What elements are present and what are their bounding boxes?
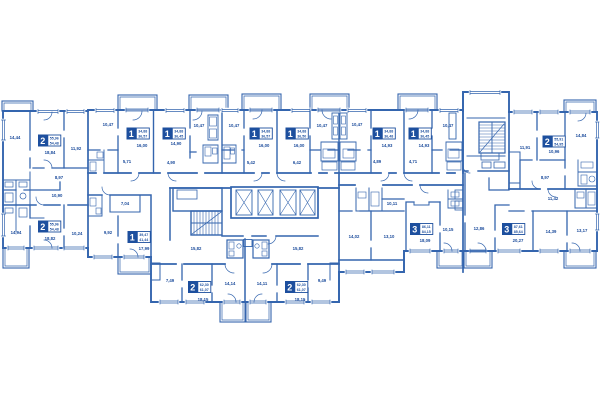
svg-text:14,14: 14,14: [225, 281, 236, 286]
svg-text:41,44: 41,44: [139, 238, 148, 242]
svg-text:34,88: 34,88: [174, 130, 183, 134]
svg-text:14,94: 14,94: [11, 230, 22, 235]
svg-text:11,91: 11,91: [520, 145, 531, 150]
svg-text:1: 1: [375, 129, 380, 139]
svg-text:54,48: 54,48: [50, 228, 59, 232]
svg-text:14,11: 14,11: [257, 281, 268, 286]
svg-text:2: 2: [545, 137, 550, 147]
svg-text:17,99: 17,99: [139, 246, 150, 251]
svg-text:34,88: 34,88: [138, 130, 147, 134]
svg-text:2: 2: [40, 222, 45, 232]
svg-text:10,47: 10,47: [103, 122, 114, 127]
svg-text:61,07: 61,07: [297, 288, 306, 292]
svg-text:8,97: 8,97: [541, 175, 550, 180]
svg-text:2: 2: [40, 136, 45, 146]
svg-text:1: 1: [411, 129, 416, 139]
svg-text:14,39: 14,39: [546, 229, 557, 234]
svg-text:84,15: 84,15: [422, 230, 431, 234]
svg-text:14,84: 14,84: [576, 133, 587, 138]
svg-text:13,10: 13,10: [384, 234, 395, 239]
svg-text:16,00: 16,00: [137, 143, 148, 148]
svg-text:55,96: 55,96: [50, 137, 59, 141]
svg-text:1: 1: [130, 233, 135, 243]
svg-text:1: 1: [252, 129, 257, 139]
svg-text:10,15: 10,15: [443, 227, 454, 232]
svg-text:10,47: 10,47: [317, 123, 328, 128]
svg-text:13,17: 13,17: [577, 228, 588, 233]
svg-text:54,48: 54,48: [50, 142, 59, 146]
svg-text:87,61: 87,61: [514, 225, 523, 229]
svg-text:39,47: 39,47: [139, 233, 148, 237]
svg-text:1: 1: [129, 129, 134, 139]
svg-text:7,04: 7,04: [121, 201, 130, 206]
svg-text:15,82: 15,82: [191, 246, 202, 251]
svg-text:36,57: 36,57: [261, 135, 270, 139]
svg-text:5,42: 5,42: [247, 160, 256, 165]
svg-text:36,48: 36,48: [384, 135, 393, 139]
svg-text:55,96: 55,96: [50, 223, 59, 227]
svg-text:55,91: 55,91: [554, 138, 563, 142]
svg-text:4,71: 4,71: [409, 159, 418, 164]
svg-text:7,49: 7,49: [166, 278, 175, 283]
svg-text:1: 1: [288, 129, 293, 139]
svg-text:3: 3: [504, 225, 509, 235]
svg-text:4,89: 4,89: [373, 159, 382, 164]
svg-text:16,00: 16,00: [294, 143, 305, 148]
svg-text:10,24: 10,24: [72, 231, 83, 236]
svg-text:36,45: 36,45: [174, 135, 183, 139]
svg-text:9,49: 9,49: [318, 278, 327, 283]
svg-text:2: 2: [190, 283, 195, 293]
svg-text:16,00: 16,00: [259, 143, 270, 148]
svg-text:2: 2: [287, 283, 292, 293]
svg-text:34,88: 34,88: [297, 130, 306, 134]
svg-text:14,44: 14,44: [10, 135, 21, 140]
svg-text:36,50: 36,50: [297, 135, 306, 139]
svg-text:8,97: 8,97: [55, 175, 64, 180]
svg-text:6,42: 6,42: [293, 160, 302, 165]
svg-text:34,88: 34,88: [384, 130, 393, 134]
svg-text:18,82: 18,82: [45, 236, 56, 241]
svg-text:85,64: 85,64: [514, 230, 523, 234]
svg-text:14,93: 14,93: [382, 143, 393, 148]
svg-text:3: 3: [412, 225, 417, 235]
svg-text:4,90: 4,90: [167, 160, 176, 165]
svg-text:18,09: 18,09: [420, 238, 431, 243]
svg-text:11,42: 11,42: [548, 196, 559, 201]
svg-text:36,45: 36,45: [420, 135, 429, 139]
svg-text:11,92: 11,92: [71, 146, 82, 151]
svg-text:54,95: 54,95: [554, 143, 563, 147]
svg-text:10,47: 10,47: [443, 123, 454, 128]
svg-text:36,57: 36,57: [138, 135, 147, 139]
svg-text:10,96: 10,96: [549, 149, 560, 154]
svg-text:10,47: 10,47: [229, 123, 240, 128]
svg-text:18,84: 18,84: [45, 150, 56, 155]
svg-text:18,15: 18,15: [198, 297, 209, 302]
svg-text:10,47: 10,47: [352, 122, 363, 127]
svg-text:34,88: 34,88: [261, 130, 270, 134]
svg-text:34,88: 34,88: [420, 130, 429, 134]
svg-text:15,82: 15,82: [293, 246, 304, 251]
svg-text:62,30: 62,30: [297, 283, 306, 287]
svg-text:14,90: 14,90: [171, 141, 182, 146]
svg-text:10,90: 10,90: [52, 193, 63, 198]
svg-text:18,15: 18,15: [295, 297, 306, 302]
svg-text:5,71: 5,71: [123, 159, 132, 164]
svg-text:10,47: 10,47: [194, 123, 205, 128]
svg-text:1: 1: [165, 129, 170, 139]
svg-text:9,92: 9,92: [104, 230, 113, 235]
svg-text:20,27: 20,27: [513, 238, 524, 243]
svg-text:10,11: 10,11: [387, 201, 398, 206]
svg-text:86,11: 86,11: [422, 225, 431, 229]
svg-text:14,02: 14,02: [349, 234, 360, 239]
svg-text:14,93: 14,93: [419, 143, 430, 148]
svg-text:61,07: 61,07: [200, 288, 209, 292]
svg-text:62,30: 62,30: [200, 283, 209, 287]
svg-text:12,86: 12,86: [474, 226, 485, 231]
